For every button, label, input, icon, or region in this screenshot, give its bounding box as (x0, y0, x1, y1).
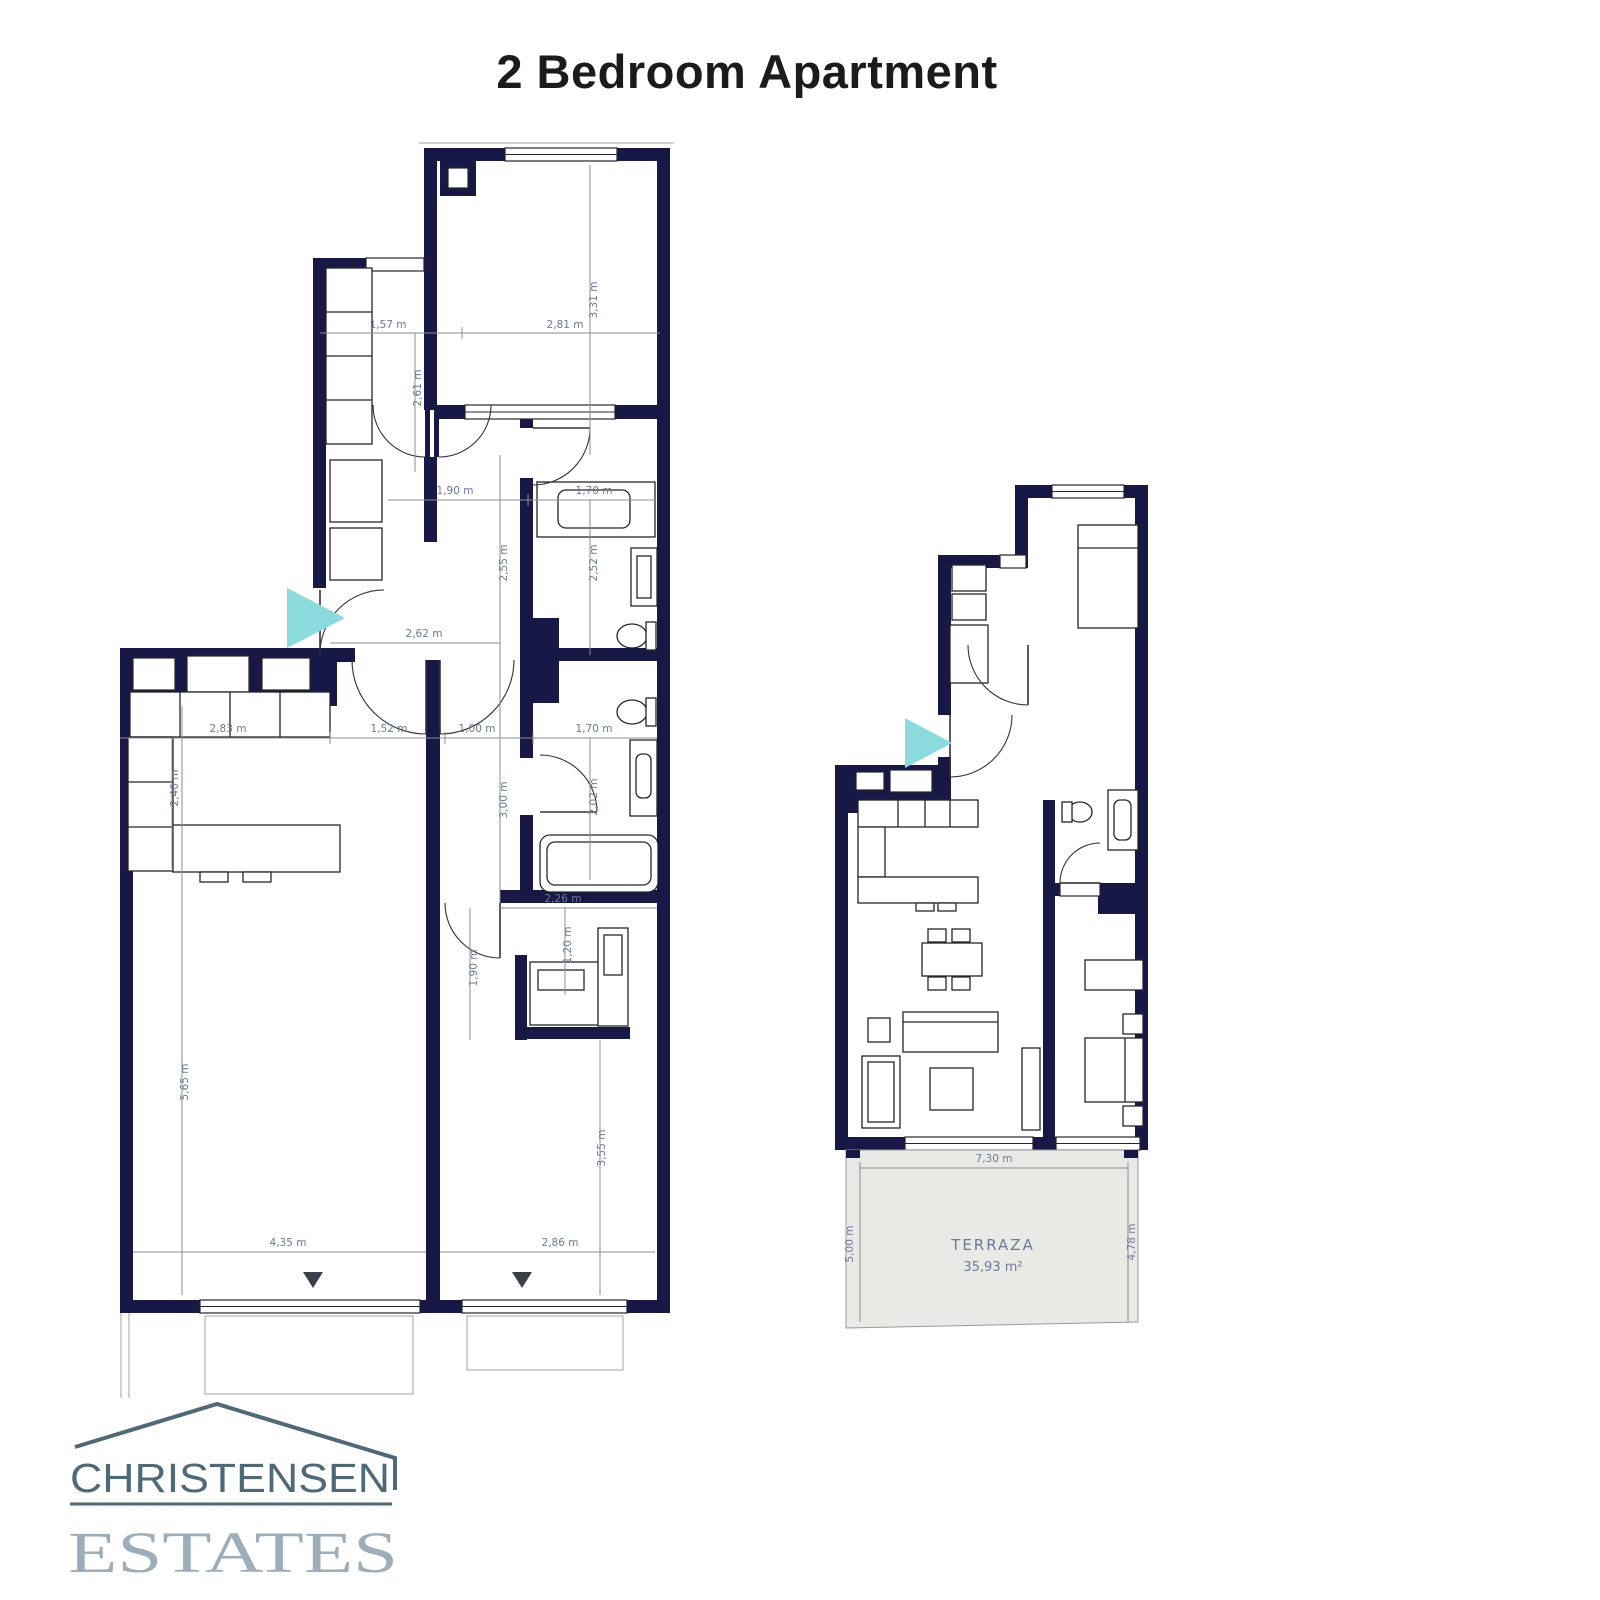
left-plan: 1,57 m 2,81 m 3,31 m 2,61 m 1,90 m 1,70 … (120, 143, 674, 1398)
dim-label: 3,31 m (588, 282, 600, 319)
right-plan-furniture (858, 525, 1143, 1130)
dim-label: 2,52 m (588, 545, 600, 582)
dim-label: 3,00 m (498, 782, 510, 819)
terrace-area-label: 35,93 m² (963, 1260, 1022, 1275)
entrance-arrow-icon (287, 588, 345, 648)
dim-label: 2,62 m (406, 628, 443, 640)
dim-label: 4,78 m (1126, 1224, 1138, 1261)
dim-label: 7,30 m (976, 1153, 1013, 1165)
terrace-label: TERRAZA (950, 1236, 1035, 1254)
dim-label: 2,55 m (498, 545, 510, 582)
window-marker-icon (512, 1272, 532, 1288)
left-plan-fixtures (128, 268, 658, 1026)
dim-label: 2,61 m (412, 370, 424, 407)
dim-label: 1,00 m (459, 723, 496, 735)
dim-label: 2,02 m (588, 779, 600, 816)
brand-logo: CHRISTENSEN ESTATES (68, 1404, 398, 1585)
floor-plans-canvas: 1,57 m 2,81 m 3,31 m 2,61 m 1,90 m 1,70 … (0, 0, 1600, 1600)
dim-label: 1,57 m (370, 319, 407, 331)
right-plan: 7,30 m 5,00 m 4,78 m TERRAZA 35,93 m² (835, 485, 1148, 1328)
dim-label: 4,35 m (270, 1237, 307, 1249)
dim-label: 1,20 m (562, 927, 574, 964)
dim-label: 1,70 m (576, 723, 613, 735)
dim-label: 1,90 m (468, 950, 480, 987)
dim-label: 1,52 m (371, 723, 408, 735)
dim-label: 1,70 m (576, 485, 613, 497)
dim-label: 2,40 m (169, 770, 181, 807)
logo-name: CHRISTENSEN (70, 1455, 390, 1501)
balcony-outline (205, 1316, 413, 1394)
sill-line (121, 1313, 129, 1398)
dim-label: 2,83 m (210, 723, 247, 735)
dim-label: 5,65 m (179, 1064, 191, 1101)
terrace: 7,30 m 5,00 m 4,78 m TERRAZA 35,93 m² (844, 1150, 1138, 1328)
left-plan-dimension-labels: 1,57 m 2,81 m 3,31 m 2,61 m 1,90 m 1,70 … (169, 282, 612, 1249)
dim-label: 2,81 m (547, 319, 584, 331)
window-marker-icon (303, 1272, 323, 1288)
dim-label: 2,26 m (545, 893, 582, 905)
logo-subname: ESTATES (68, 1520, 398, 1585)
dim-label: 2,86 m (542, 1237, 579, 1249)
dim-label: 1,90 m (437, 485, 474, 497)
dim-label: 3,55 m (596, 1130, 608, 1167)
balcony-outline (467, 1316, 623, 1370)
dim-label: 5,00 m (844, 1226, 856, 1263)
floor-plan-sheet: 2 Bedroom Apartment (0, 0, 1600, 1600)
